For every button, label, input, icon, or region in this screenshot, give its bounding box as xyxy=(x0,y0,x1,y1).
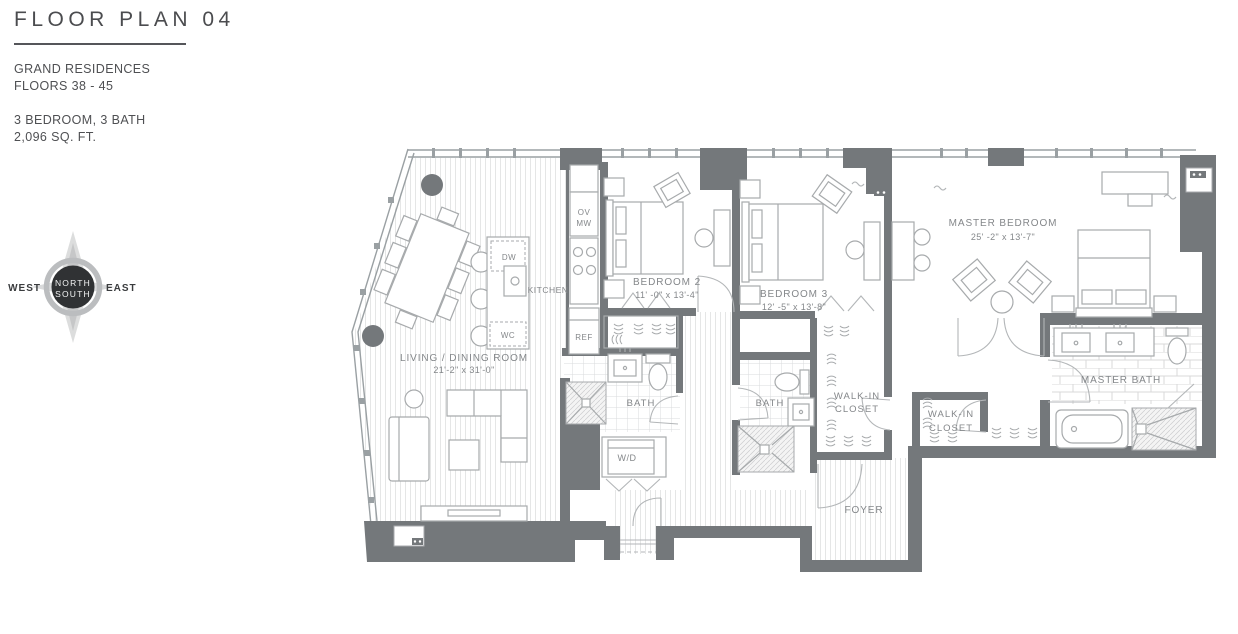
oven-label: OV xyxy=(578,208,591,217)
round-table xyxy=(991,291,1013,313)
floor-plan-sheet: FLOOR PLAN 04 GRAND RESIDENCES FLOORS 38… xyxy=(0,0,1238,634)
microwave-label: MW xyxy=(576,219,591,228)
kitchen-appliances xyxy=(569,165,599,354)
toilet xyxy=(646,354,670,363)
bedroom3-label: BEDROOM 3 xyxy=(760,289,828,300)
kitchen-label: KITCHEN xyxy=(528,285,569,295)
toilet xyxy=(775,373,799,391)
refrigerator xyxy=(569,308,599,354)
compass-west: WEST xyxy=(8,283,41,294)
bath2-label: BATH xyxy=(627,398,656,409)
console-table xyxy=(892,222,914,280)
desk xyxy=(714,210,730,266)
hall-floor-horizontal xyxy=(614,490,810,526)
vanity xyxy=(608,354,642,382)
desk xyxy=(864,222,880,280)
coffee-table xyxy=(449,440,479,470)
bathtub xyxy=(1056,410,1128,448)
compass-south: SOUTH xyxy=(55,289,91,299)
dishwasher-label: DW xyxy=(502,253,516,262)
toilet xyxy=(1168,338,1186,364)
wine-cooler-label: WC xyxy=(501,331,515,340)
chaise xyxy=(389,417,429,481)
wic1-fittings xyxy=(824,326,871,446)
wic1-label-line1: WALK-IN xyxy=(834,391,880,402)
plan-canvas: LIVING / DINING ROOM 21'-2" x 31'-0" KIT… xyxy=(0,0,1238,634)
desk xyxy=(1102,172,1168,194)
refrigerator-label: REF xyxy=(575,333,593,342)
washer-dryer-label: W/D xyxy=(618,453,637,463)
compass-north: NORTH xyxy=(55,278,91,288)
bedroom3-dims: 12' -5" x 13'-8" xyxy=(762,302,826,312)
master-bedroom-furniture xyxy=(892,172,1176,317)
wic1-label-line2: CLOSET xyxy=(835,404,879,415)
bedroom2-closet xyxy=(604,316,678,348)
hall-floor-vertical xyxy=(684,312,732,490)
compass-rose: NORTH SOUTH WEST EAST xyxy=(8,231,137,343)
compass-east: EAST xyxy=(106,283,137,294)
laundry-closet xyxy=(602,437,666,491)
bedroom2-label: BEDROOM 2 xyxy=(633,277,701,288)
living-room-label: LIVING / DINING ROOM xyxy=(400,353,528,364)
wic2-label-line2: CLOSET xyxy=(929,423,973,434)
side-table xyxy=(405,390,423,408)
foyer-label: FOYER xyxy=(845,505,884,516)
master-bedroom-label: MASTER BEDROOM xyxy=(949,218,1058,229)
living-room-dims: 21'-2" x 31'-0" xyxy=(433,365,494,375)
master-bath-label: MASTER BATH xyxy=(1081,375,1161,386)
column xyxy=(421,174,443,196)
bedroom2-dims: 11' -0" x 13'-4" xyxy=(635,290,699,300)
wic2-label-line1: WALK-IN xyxy=(928,409,974,420)
column xyxy=(362,325,384,347)
vanity xyxy=(788,398,814,426)
master-bedroom-dims: 25' -2" x 13'-7" xyxy=(971,232,1035,242)
bath3-label: BATH xyxy=(756,398,785,409)
